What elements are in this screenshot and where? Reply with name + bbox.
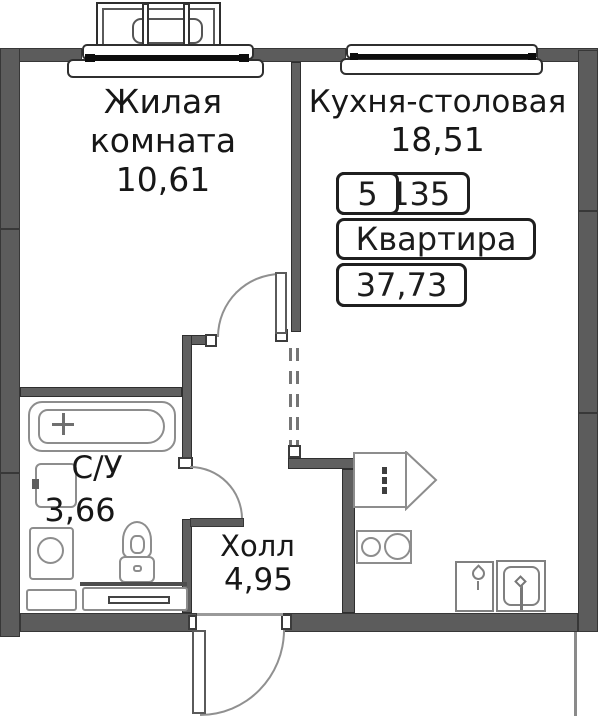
wall-bathroom-east-upper (182, 335, 192, 466)
hall-name: Холл (205, 529, 310, 563)
wall-bottom-left (20, 613, 197, 632)
entrance-door-swing-arc (200, 630, 285, 716)
wall-kitchen-stub (288, 458, 355, 469)
living-door-leaf (275, 272, 287, 334)
living-window-sill (67, 59, 264, 78)
total-area-cell: 37,73 (336, 263, 467, 307)
wall-node (205, 334, 217, 347)
kitchen-area: 18,51 (305, 121, 570, 160)
living-room-name-line1: Жилая (43, 83, 283, 122)
balcony-post (142, 3, 149, 47)
cabinet-door-swing-icon (405, 451, 439, 511)
living-window-end-cap (85, 54, 95, 62)
cabinet-vent-dash (382, 477, 387, 484)
washing-machine-drum (37, 537, 64, 564)
bathroom-door-swing-arc (190, 466, 243, 519)
living-door-swing-arc (217, 273, 281, 337)
bathroom-cabinet-top-line (80, 582, 187, 586)
kitchen-window-glass-line (352, 54, 534, 59)
living-window-glass-line (85, 55, 249, 61)
wall-bathroom-top (20, 387, 182, 397)
wall-node (281, 614, 292, 630)
wall-living-kitchen-divider (291, 62, 301, 332)
toilet-bowl-inner (130, 535, 145, 554)
wall-joint (0, 472, 20, 474)
bathtub-faucet-icon (62, 413, 65, 435)
living-window-end-cap (239, 54, 249, 62)
kind-cell: Квартира (336, 218, 536, 260)
wall-node (288, 445, 301, 458)
bathroom-door-leaf (190, 518, 244, 527)
kitchen-sink-drop-tail (477, 581, 479, 590)
kitchen-window-sill (340, 58, 543, 75)
floor-cell: 5 (336, 172, 399, 215)
bathroom-sink-tap-icon (32, 479, 39, 489)
wall-right (578, 50, 598, 632)
stove-burner-left (361, 537, 381, 557)
wall-node (188, 615, 197, 630)
bathroom-area: 3,66 (24, 492, 136, 530)
living-room-name-line2: комната (43, 122, 283, 161)
wall-joint (578, 412, 598, 414)
bathroom-cabinet-left (26, 589, 77, 611)
bathtub-inner (38, 409, 165, 444)
stove-burner-right (384, 533, 411, 560)
bathroom-cabinet-handle (108, 596, 170, 604)
toilet-button (133, 565, 142, 572)
kitchen-tall-cabinet (353, 452, 408, 508)
kitchen-window-end-cap (350, 53, 358, 60)
kitchen-label: Кухня-столовая 18,51 (305, 84, 570, 160)
wall-top-middle (250, 48, 346, 62)
entrance-threshold-line (197, 613, 283, 616)
hall-area: 4,95 (206, 562, 311, 599)
living-room-area: 10,61 (43, 161, 283, 200)
facade-line-bottom-right (574, 632, 577, 716)
kitchen-window-end-cap (528, 53, 536, 60)
bathroom-name: С/У (47, 450, 147, 487)
cabinet-vent-dash (382, 487, 387, 494)
cabinet-vent-dash (382, 467, 387, 474)
balcony-post (183, 3, 190, 47)
wall-bottom-right (283, 613, 578, 632)
wall-joint (0, 228, 20, 230)
wall-joint (578, 210, 598, 212)
living-room-label: Жилая комната 10,61 (43, 83, 283, 200)
floor-plan: Жилая комната 10,61 Кухня-столовая 18,51… (0, 0, 600, 716)
kitchen-name: Кухня-столовая (305, 84, 570, 121)
entrance-door-leaf (192, 630, 206, 714)
dashed-boundary-line (296, 348, 299, 458)
dashed-boundary-line (289, 348, 292, 458)
wall-left (0, 48, 20, 637)
